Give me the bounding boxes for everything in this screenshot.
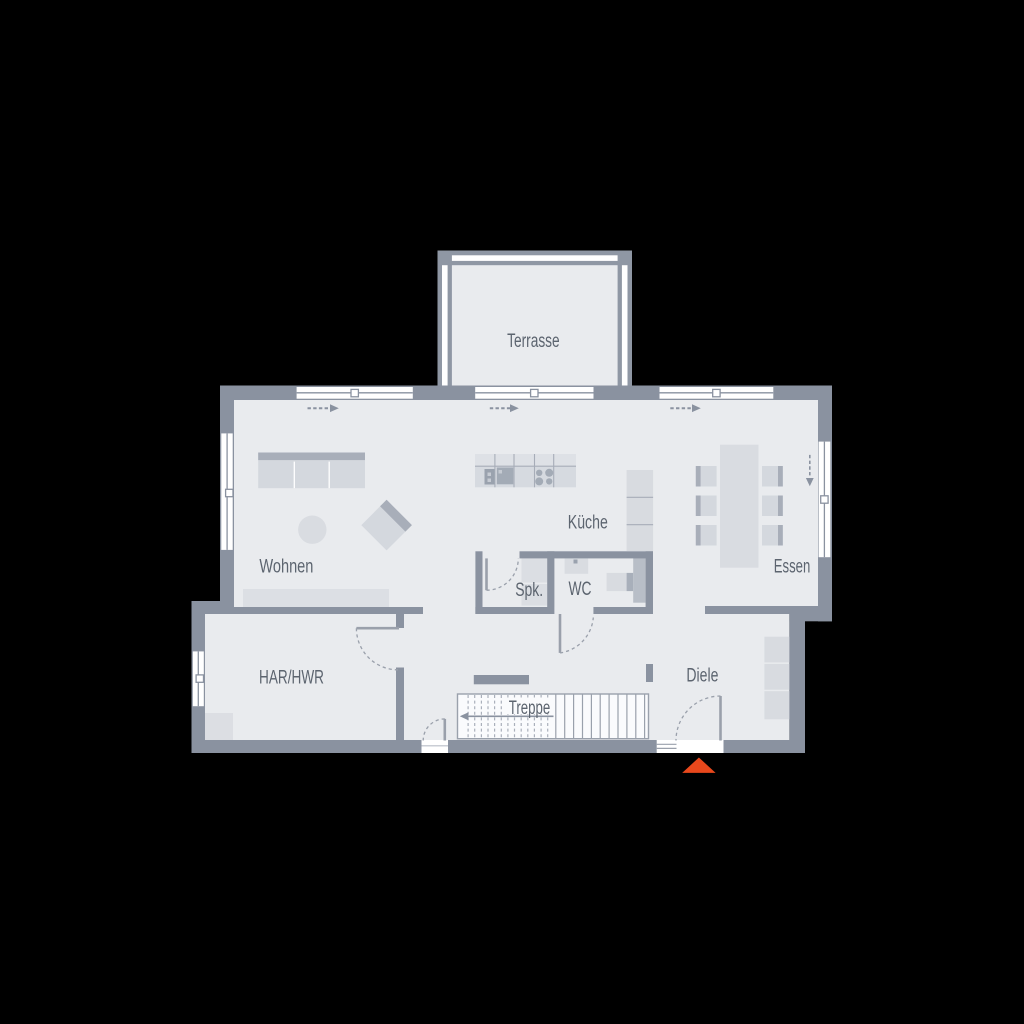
- svg-text:Spk.: Spk.: [515, 580, 543, 601]
- svg-text:Küche: Küche: [568, 513, 608, 534]
- svg-text:Diele: Diele: [686, 665, 718, 686]
- svg-text:HAR/HWR: HAR/HWR: [259, 668, 324, 689]
- svg-text:WC: WC: [569, 579, 592, 600]
- svg-text:Terrasse: Terrasse: [507, 331, 560, 352]
- svg-text:Wohnen: Wohnen: [259, 557, 313, 578]
- svg-text:Treppe: Treppe: [509, 698, 551, 719]
- svg-text:Essen: Essen: [774, 557, 811, 578]
